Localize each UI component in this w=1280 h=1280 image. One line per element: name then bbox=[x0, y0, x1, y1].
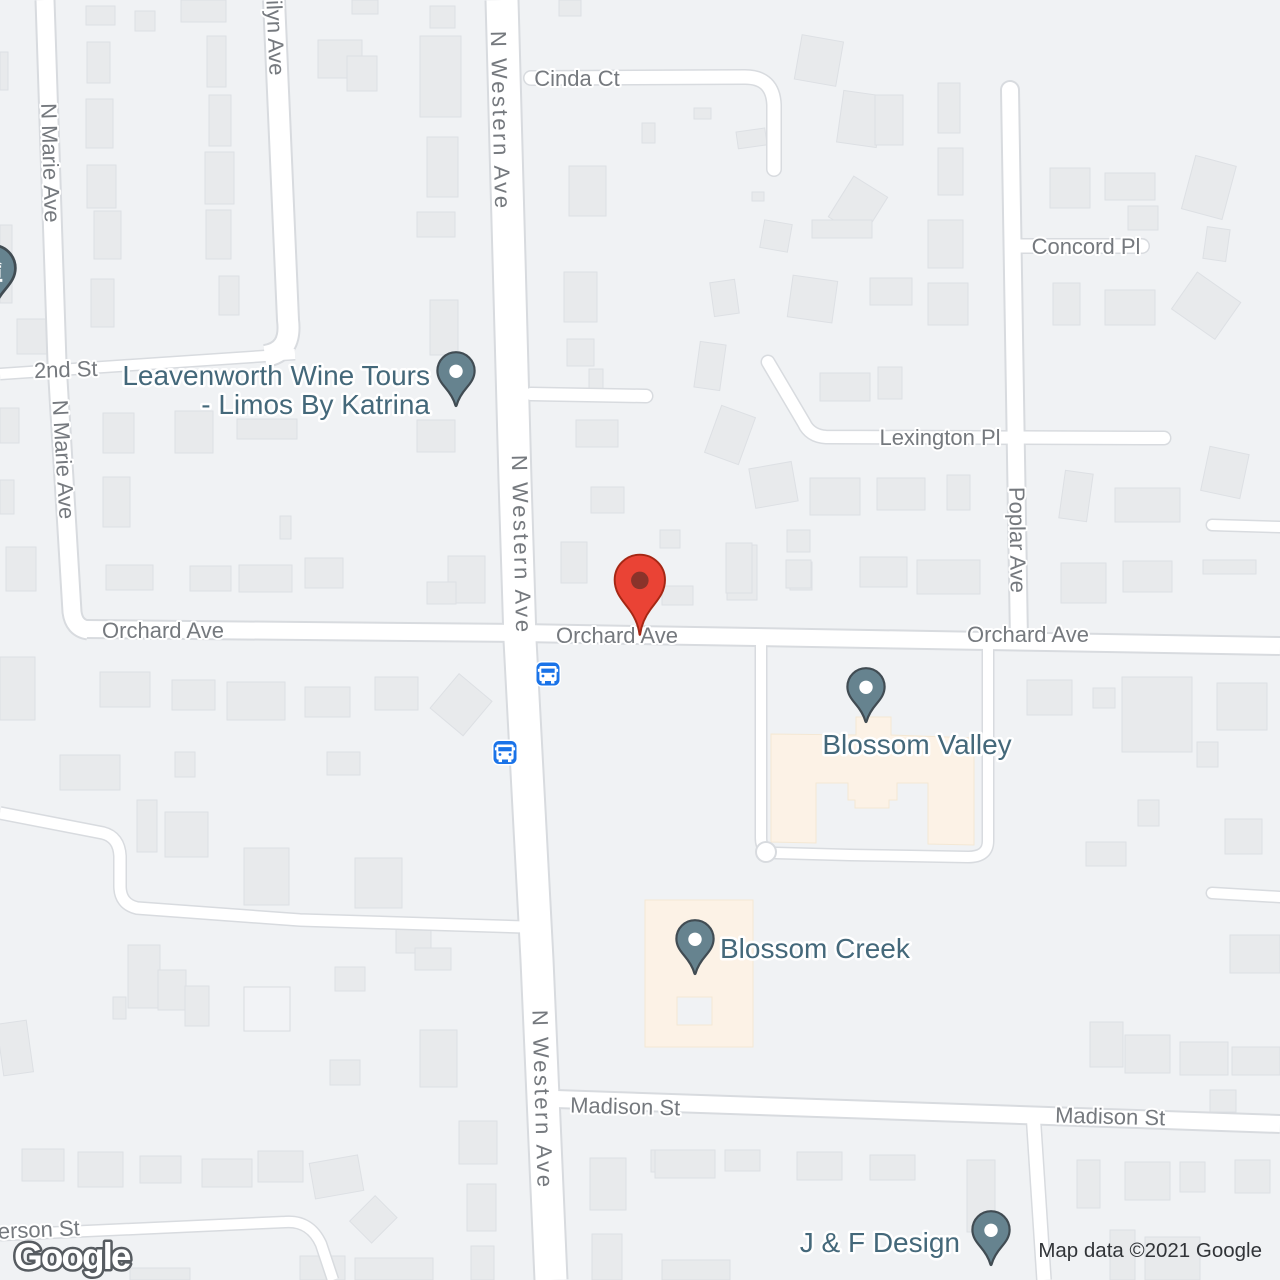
svg-text:Concord Pl: Concord Pl bbox=[1032, 234, 1141, 259]
svg-text:Blossom Creek: Blossom Creek bbox=[720, 933, 911, 964]
svg-text:Lexington Pl: Lexington Pl bbox=[879, 425, 1000, 450]
svg-text:N Marie Ave: N Marie Ave bbox=[36, 103, 65, 223]
svg-text:N Western Ave: N Western Ave bbox=[527, 1010, 557, 1190]
svg-text:ilyn Ave: ilyn Ave bbox=[261, 0, 289, 76]
svg-text:Cinda Ct: Cinda Ct bbox=[534, 66, 620, 91]
svg-text:Map data ©2021 Google: Map data ©2021 Google bbox=[1038, 1239, 1262, 1262]
svg-text:Blossom Valley: Blossom Valley bbox=[822, 729, 1011, 760]
svg-text:N Western Ave: N Western Ave bbox=[507, 455, 536, 635]
svg-text:Madison St: Madison St bbox=[570, 1093, 681, 1121]
svg-text:Orchard Ave: Orchard Ave bbox=[102, 618, 224, 643]
svg-text:Google: Google bbox=[14, 1236, 131, 1277]
svg-text:- Limos By Katrina: - Limos By Katrina bbox=[201, 389, 430, 420]
svg-text:2nd St: 2nd St bbox=[34, 356, 98, 383]
svg-text:Leavenworth Wine Tours: Leavenworth Wine Tours bbox=[122, 360, 430, 391]
svg-text:Orchard Ave: Orchard Ave bbox=[556, 623, 678, 648]
svg-text:N Western Ave: N Western Ave bbox=[486, 31, 515, 211]
svg-text:Poplar Ave: Poplar Ave bbox=[1004, 487, 1030, 593]
svg-text:J & F Design: J & F Design bbox=[800, 1227, 960, 1258]
svg-text:Madison St: Madison St bbox=[1055, 1103, 1166, 1131]
svg-text:Orchard Ave: Orchard Ave bbox=[967, 622, 1089, 647]
